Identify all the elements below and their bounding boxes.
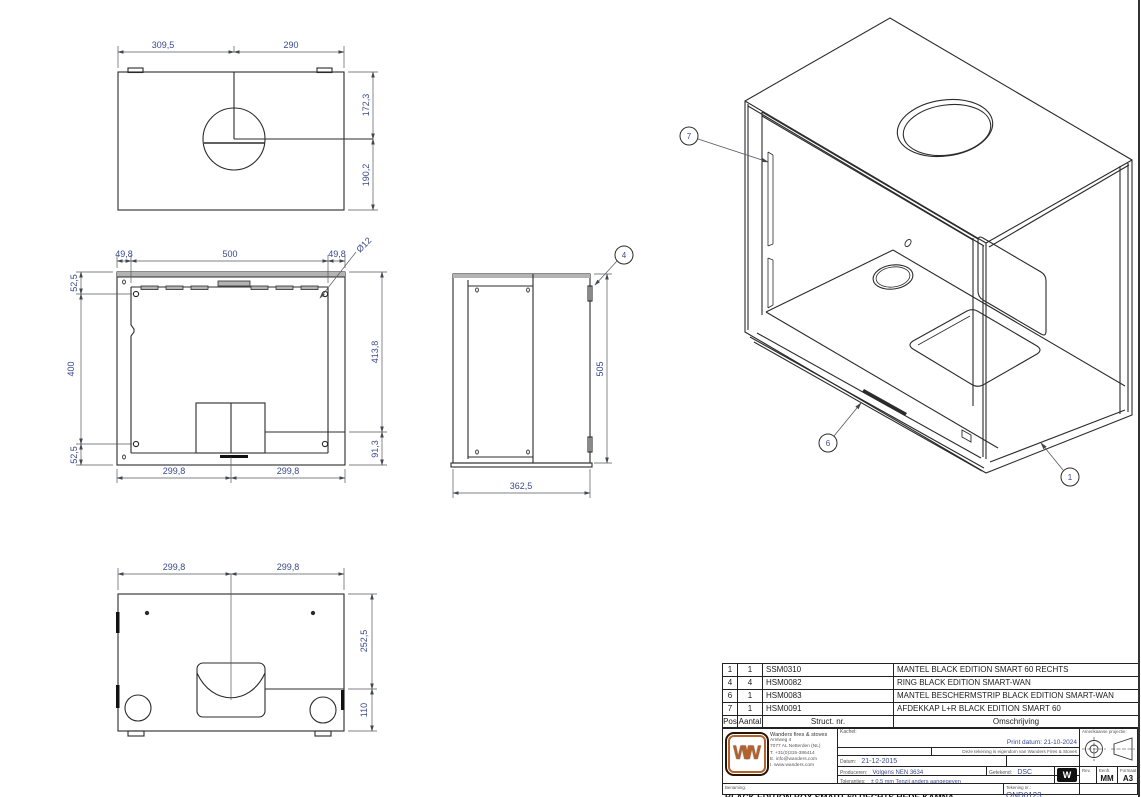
dim-500: 500	[222, 249, 237, 259]
part-desc: MANTEL BLACK EDITION SMART 60 RECHTS	[894, 664, 1139, 677]
wanders-logo: WW	[725, 732, 769, 776]
drawing-number: OND0123	[1004, 791, 1079, 797]
dim-52-5-bot: 52,5	[69, 446, 79, 464]
wanders-logo-glyph: WW	[733, 743, 753, 765]
part-desc: RING BLACK EDITION SMART-WAN	[894, 677, 1139, 690]
part-pos: 6	[723, 690, 738, 703]
iso-callout-leaders	[698, 139, 1063, 470]
toleranties-cell: Toleranties: ± 0.5 mm Tenzij anders aang…	[837, 775, 1079, 783]
dim-299-8-bl: 299,8	[163, 562, 186, 572]
part-struct: HSM0083	[763, 690, 894, 703]
projection-label: Amerikaanse projectie:	[1080, 728, 1138, 735]
datum-spare-cell	[1006, 755, 1079, 766]
print-date: Print datum: 21-10-2024	[1007, 739, 1077, 746]
dim-172-3: 172,3	[361, 94, 371, 117]
projection-cell: Amerikaanse projectie:	[1079, 728, 1138, 766]
rev-label: Rev.	[1080, 767, 1096, 774]
benaming-label: Benaming:	[723, 784, 1003, 791]
datum-label: Datum:	[838, 758, 856, 765]
wanders-small-logo: W	[1057, 768, 1077, 782]
callout-4: 4	[622, 251, 627, 260]
format-cell: Formaat A3	[1117, 766, 1138, 783]
front-view	[117, 272, 345, 465]
side-view	[451, 274, 592, 467]
unit-cell: Eenh. MM	[1096, 766, 1117, 783]
tekening-cell: Tekening nr.: OND0123	[1003, 783, 1079, 795]
format-value: A3	[1118, 774, 1138, 783]
title-block-area: 1 1 SSM0310 MANTEL BLACK EDITION SMART 6…	[722, 663, 1139, 795]
callout-7: 7	[687, 132, 692, 141]
dim-290: 290	[283, 40, 298, 50]
dim-505: 505	[595, 361, 605, 376]
drawing-sheet: 309,5 290 172,3 190,2	[0, 0, 1141, 797]
format-label: Formaat	[1118, 767, 1138, 774]
ownership-note: Deze tekening is eigendom van Wanders Fi…	[932, 748, 1079, 754]
part-qty: 1	[738, 703, 763, 716]
kachel-cell: Kachel: Print datum: 21-10-2024	[837, 728, 1079, 747]
parts-table: 1 1 SSM0310 MANTEL BLACK EDITION SMART 6…	[722, 663, 1139, 729]
part-struct: SSM0310	[763, 664, 894, 677]
wanders-small-logo-glyph: W	[1063, 770, 1068, 780]
dim-190-2: 190,2	[361, 164, 371, 187]
kachel-label: Kachel:	[838, 728, 1079, 735]
top-view-dims	[118, 46, 378, 210]
company-cell: WW Wanders fires & stoves Amtweg 4 7077 …	[723, 728, 837, 783]
small-logo-cell: W	[1054, 766, 1079, 783]
top-view	[118, 68, 373, 210]
part-qty: 1	[738, 690, 763, 703]
dim-252-5: 252,5	[359, 630, 369, 653]
part-struct: HSM0091	[763, 703, 894, 716]
rev-cell: Rev.	[1079, 766, 1096, 783]
bottom-view	[116, 594, 345, 736]
title-block: WW Wanders fires & stoves Amtweg 4 7077 …	[722, 727, 1138, 795]
sheet-right-border	[1138, 0, 1140, 797]
iso-view	[745, 18, 1132, 473]
third-angle-projection-icon	[1080, 735, 1137, 763]
company-web: I. www.wanders.com	[770, 763, 836, 769]
spacer-cell	[837, 747, 931, 755]
company-info: Wanders fires & stoves Amtweg 4 7077 AL …	[770, 732, 836, 769]
produceren-cell: Produceren: Volgens NEN 3634	[837, 766, 986, 775]
dim-52-5-top: 52,5	[69, 274, 79, 292]
datum-cell: Datum: 21-12-2015	[837, 755, 1006, 766]
bottom-view-dims	[118, 568, 377, 731]
drawing-title: BLACK EDITION BOX SMART 60 RECHTS HEDE K…	[723, 791, 1003, 797]
callout-1: 1	[1068, 473, 1073, 482]
dim-49-8-l: 49,8	[115, 249, 133, 259]
part-desc: MANTEL BESCHERMSTRIP BLACK EDITION SMART…	[894, 690, 1139, 703]
benaming-cell: Benaming: BLACK EDITION BOX SMART 60 REC…	[723, 783, 1003, 795]
dim-400: 400	[66, 361, 76, 376]
datum-value: 21-12-2015	[858, 758, 897, 765]
part-struct: HSM0082	[763, 677, 894, 690]
part-pos: 1	[723, 664, 738, 677]
ownership-cell: Deze tekening is eigendom van Wanders Fi…	[931, 747, 1079, 755]
part-pos: 4	[723, 677, 738, 690]
dim-413-8: 413,8	[370, 341, 380, 364]
part-qty: 1	[738, 664, 763, 677]
dim-91-3: 91,3	[370, 440, 380, 458]
dim-299-8-fl: 299,8	[163, 466, 186, 476]
dim-309-5: 309,5	[152, 40, 175, 50]
dim-hole-12: Ø12	[354, 235, 373, 254]
part-desc: AFDEKKAP L+R BLACK EDITION SMART 60	[894, 703, 1139, 716]
bottom-right-spare-cell	[1079, 783, 1138, 795]
dim-110: 110	[359, 703, 369, 717]
dim-299-8-br: 299,8	[277, 562, 300, 572]
dim-299-8-fr: 299,8	[277, 466, 300, 476]
callout-6: 6	[826, 439, 831, 448]
unit-label: Eenh.	[1097, 767, 1117, 774]
unit-value: MM	[1097, 774, 1117, 783]
part-qty: 4	[738, 677, 763, 690]
tekening-label: Tekening nr.:	[1004, 784, 1079, 791]
dim-362-5: 362,5	[510, 481, 533, 491]
dim-49-8-r: 49,8	[328, 249, 346, 259]
part-pos: 7	[723, 703, 738, 716]
